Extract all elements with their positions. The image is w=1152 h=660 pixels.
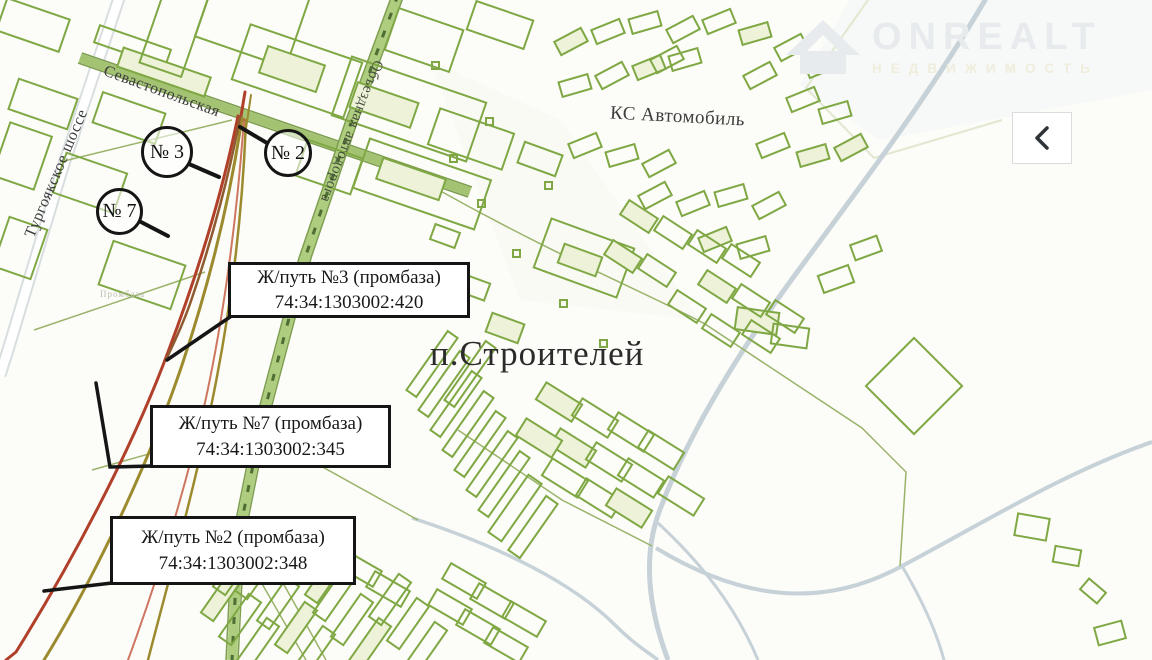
callout-cadastral-number: 74:34:1303002:348 xyxy=(159,551,308,576)
callout-title: Ж/путь №3 (промбаза) xyxy=(257,265,441,290)
previous-photo-button[interactable] xyxy=(1012,112,1072,164)
marker-circle-3: № 3 xyxy=(141,126,193,178)
callout-zhput-2: Ж/путь №2 (промбаза) 74:34:1303002:348 xyxy=(110,516,356,585)
callout-cadastral-number: 74:34:1303002:345 xyxy=(196,437,345,462)
callout-title: Ж/путь №2 (промбаза) xyxy=(141,525,325,550)
callout-cadastral-number: 74:34:1303002:420 xyxy=(275,290,424,315)
callout-zhput-3: Ж/путь №3 (промбаза) 74:34:1303002:420 xyxy=(228,262,470,318)
chevron-left-icon xyxy=(1032,126,1052,150)
road-turgoyakskoe xyxy=(0,0,120,375)
callout-title: Ж/путь №7 (промбаза) xyxy=(179,411,363,436)
cadastral-map-image[interactable]: Севастопольская Тургоякское шоссе Объезд… xyxy=(0,0,1152,660)
callout-zhput-7: Ж/путь №7 (промбаза) 74:34:1303002:345 xyxy=(150,405,391,468)
marker-circle-7: № 7 xyxy=(96,188,143,235)
marker-circle-2: № 2 xyxy=(264,129,312,177)
